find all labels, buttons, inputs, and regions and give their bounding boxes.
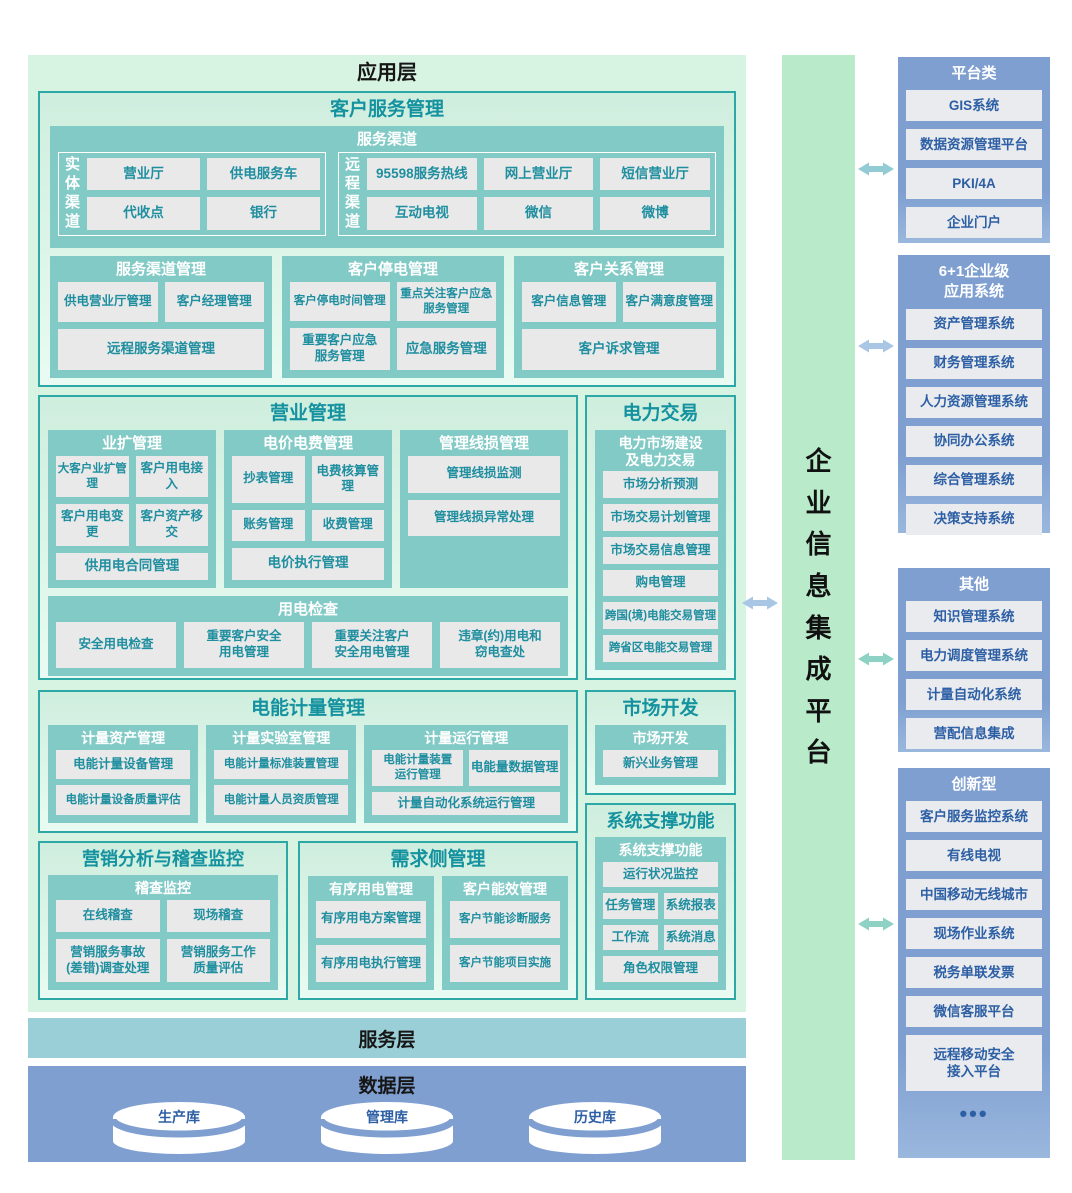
module-item: 电费核算管理	[312, 456, 385, 503]
data-layer-title: 数据层	[28, 1066, 746, 1098]
module-item: 客户诉求管理	[522, 329, 716, 370]
module-item: 重点关注客户应急 服务管理	[397, 282, 497, 321]
system-item: 协同办公系统	[906, 426, 1042, 457]
system-item: 企业门户	[906, 207, 1042, 238]
crm-group: 客户关系管理 客户信息管理 客户满意度管理 客户诉求管理	[514, 256, 724, 378]
physical-channels-frame: 实体渠道 营业厅 供电服务车 代收点 银行	[58, 152, 326, 236]
module-item: 抄表管理	[232, 456, 305, 503]
system-item: 数据资源管理平台	[906, 129, 1042, 160]
section-title: 客户服务管理	[40, 93, 734, 124]
inspection-group: 用电检查 安全用电检查 重要客户安全 用电管理 重要关注客户 安全用电管理 违章…	[48, 596, 568, 676]
system-item: 现场作业系统	[906, 918, 1042, 949]
section-title: 需求侧管理	[300, 843, 576, 874]
module-item: 系统报表	[664, 893, 719, 919]
section-title: 营销分析与稽查监控	[40, 843, 286, 873]
module-item: 客户节能诊断服务	[450, 901, 560, 938]
subgroup-header: 计量运行管理	[372, 725, 560, 750]
subgroup-header: 服务渠道管理	[58, 256, 264, 282]
subgroup-header: 稽查监控	[56, 875, 270, 900]
module-item: 有序用电方案管理	[316, 901, 426, 938]
right-group-title: 平台类	[906, 57, 1042, 90]
section-title: 电力交易	[587, 397, 734, 428]
module-item: 客户满意度管理	[623, 282, 717, 322]
application-layer-panel: 应用层 客户服务管理 服务渠道 实体渠道 营业厅 供电服务车 代收点 银行	[28, 55, 746, 1012]
module-item: 电能计量设备管理	[56, 750, 190, 780]
subgroup-header: 客户能效管理	[450, 876, 560, 901]
subgroup-header: 客户关系管理	[522, 256, 716, 282]
module-item: 供电服务车	[207, 158, 320, 191]
metering-operation-group: 计量运行管理 电能计量装置 运行管理 电能量数据管理 计量自动化系统运行管理	[364, 725, 568, 823]
database-cylinder: 管理库	[319, 1100, 455, 1158]
module-item: 工作流	[603, 925, 658, 951]
database-cylinder: 生产库	[111, 1100, 247, 1158]
channel-management-group: 服务渠道管理 供电营业厅管理 客户经理管理 远程服务渠道管理	[50, 256, 272, 378]
right-group-others: 其他 知识管理系统 电力调度管理系统 计量自动化系统 营配信息集成	[898, 568, 1050, 752]
database-label: 管理库	[319, 1107, 455, 1127]
subgroup-header: 服务渠道	[50, 126, 724, 152]
module-item: 重要关注客户 安全用电管理	[312, 622, 432, 668]
expansion-group: 业扩管理 大客户业扩管理 客户用电接入 客户用电变更 客户资产移交 供用电合同管…	[48, 430, 216, 588]
module-item: 客户节能项目实施	[450, 945, 560, 982]
section-metering: 电能计量管理 计量资产管理 电能计量设备管理 电能计量设备质量评估 计量实验室管…	[38, 690, 578, 833]
module-item: 电能计量装置 运行管理	[372, 750, 463, 786]
module-item: 系统消息	[664, 925, 719, 951]
module-item: 营销服务事故 (差错)调查处理	[56, 939, 160, 982]
module-item: 客户经理管理	[165, 282, 265, 322]
system-item: 电力调度管理系统	[906, 640, 1042, 671]
module-item: 营业厅	[87, 158, 200, 191]
bidirectional-arrow-icon	[742, 595, 778, 611]
outage-management-group: 客户停电管理 客户停电时间管理 重点关注客户应急 服务管理 重要客户应急 服务管…	[282, 256, 504, 378]
section-customer-service: 客户服务管理 服务渠道 实体渠道 营业厅 供电服务车 代收点 银行 远程	[38, 91, 736, 387]
system-item: 远程移动安全 接入平台	[906, 1035, 1042, 1091]
subgroup-header: 计量资产管理	[56, 725, 190, 750]
integration-platform-bar: 企业信息集成平台	[782, 55, 855, 1160]
module-item: 远程服务渠道管理	[58, 329, 264, 370]
module-item: 客户资产移交	[136, 504, 209, 545]
section-power-trading: 电力交易 电力市场建设 及电力交易 市场分析预测 市场交易计划管理 市场交易信息…	[585, 395, 736, 680]
module-item: 电能计量设备质量评估	[56, 785, 190, 815]
system-support-group: 系统支撑功能 运行状况监控 任务管理 系统报表 工作流 系统消息 角色权限管理	[595, 837, 726, 990]
module-item: 电能计量标准装置管理	[214, 750, 348, 780]
module-item: 计量自动化系统运行管理	[372, 792, 560, 815]
module-item: 市场交易计划管理	[603, 504, 718, 531]
module-item: 银行	[207, 197, 320, 230]
metering-lab-group: 计量实验室管理 电能计量标准装置管理 电能计量人员资质管理	[206, 725, 356, 823]
module-item: 运行状况监控	[603, 862, 718, 888]
module-item: 客户信息管理	[522, 282, 616, 322]
system-item: GIS系统	[906, 90, 1042, 121]
bidirectional-arrow-icon	[858, 651, 894, 667]
system-item: 营配信息集成	[906, 718, 1042, 749]
module-item: 网上营业厅	[484, 158, 594, 191]
module-item: 客户停电时间管理	[290, 282, 390, 321]
module-item: 供电营业厅管理	[58, 282, 158, 322]
module-item: 跨国(境)电能交易管理	[603, 602, 718, 629]
module-item: 收费管理	[312, 510, 385, 541]
module-item: 账务管理	[232, 510, 305, 541]
section-title: 系统支撑功能	[587, 805, 734, 835]
right-group-title: 6+1企业级 应用系统	[906, 255, 1042, 309]
section-title: 营业管理	[40, 397, 576, 428]
system-item: 决策支持系统	[906, 504, 1042, 535]
right-group-platform: 平台类 GIS系统 数据资源管理平台 PKI/4A 企业门户	[898, 57, 1050, 243]
module-item: 购电管理	[603, 570, 718, 597]
subgroup-header: 业扩管理	[56, 430, 208, 456]
section-demand-side: 需求侧管理 有序用电管理 有序用电方案管理 有序用电执行管理 客户能效管理	[298, 841, 578, 1000]
system-item: 财务管理系统	[906, 348, 1042, 379]
system-item: PKI/4A	[906, 168, 1042, 199]
system-item: 资产管理系统	[906, 309, 1042, 340]
subgroup-header: 电价电费管理	[232, 430, 384, 456]
system-item: 人力资源管理系统	[906, 387, 1042, 418]
module-item: 重要客户应急 服务管理	[290, 328, 390, 370]
bidirectional-arrow-icon	[858, 916, 894, 932]
module-item: 跨省区电能交易管理	[603, 635, 718, 662]
database-cylinder: 历史库	[527, 1100, 663, 1158]
service-layer-bar: 服务层	[28, 1018, 746, 1058]
more-items-ellipsis: •••	[906, 1099, 1042, 1129]
module-item: 市场分析预测	[603, 471, 718, 498]
module-item: 营销服务工作 质量评估	[167, 939, 271, 982]
section-marketing-audit: 营销分析与稽查监控 稽查监控 在线稽查 现场稽查 营销服务事故 (差错)调查处理…	[38, 841, 288, 1000]
power-market-group: 电力市场建设 及电力交易 市场分析预测 市场交易计划管理 市场交易信息管理 购电…	[595, 430, 726, 670]
module-item: 新兴业务管理	[603, 750, 718, 777]
module-item: 客户用电接入	[136, 456, 209, 497]
physical-channels-label: 实体渠道	[64, 156, 81, 231]
section-title: 市场开发	[587, 692, 734, 723]
database-label: 历史库	[527, 1107, 663, 1127]
system-item: 客户服务监控系统	[906, 801, 1042, 832]
audit-monitor-group: 稽查监控 在线稽查 现场稽查 营销服务事故 (差错)调查处理 营销服务工作 质量…	[48, 875, 278, 990]
module-item: 安全用电检查	[56, 622, 176, 668]
module-item: 电能量数据管理	[469, 750, 560, 786]
subgroup-header: 管理线损管理	[408, 430, 560, 456]
module-item: 供用电合同管理	[56, 553, 208, 580]
subgroup-header: 电力市场建设 及电力交易	[603, 430, 718, 472]
market-dev-group: 市场开发 新兴业务管理	[595, 725, 726, 785]
module-item: 在线稽查	[56, 900, 160, 933]
module-item: 大客户业扩管理	[56, 456, 129, 497]
spacer	[408, 543, 560, 580]
subgroup-header: 有序用电管理	[316, 876, 426, 901]
system-item: 综合管理系统	[906, 465, 1042, 496]
module-item: 微信	[484, 197, 594, 230]
module-item: 管理线损异常处理	[408, 500, 560, 537]
module-item: 市场交易信息管理	[603, 537, 718, 564]
right-group-title: 创新型	[906, 768, 1042, 801]
system-item: 计量自动化系统	[906, 679, 1042, 710]
subgroup-header: 计量实验室管理	[214, 725, 348, 750]
module-item: 角色权限管理	[603, 956, 718, 982]
application-layer-title: 应用层	[28, 55, 746, 89]
module-item: 现场稽查	[167, 900, 271, 933]
section-title: 电能计量管理	[40, 692, 576, 723]
section-market-development: 市场开发 市场开发 新兴业务管理	[585, 690, 736, 795]
section-business-management: 营业管理 业扩管理 大客户业扩管理 客户用电接入 客户用电变更 客户资产移交 供…	[38, 395, 578, 680]
system-item: 中国移动无线城市	[906, 879, 1042, 910]
module-item: 代收点	[87, 197, 200, 230]
module-item: 重要客户安全 用电管理	[184, 622, 304, 668]
module-item: 电能计量人员资质管理	[214, 785, 348, 815]
bidirectional-arrow-icon	[858, 161, 894, 177]
right-group-enterprise-apps: 6+1企业级 应用系统 资产管理系统 财务管理系统 人力资源管理系统 协同办公系…	[898, 255, 1050, 533]
system-item: 微信客服平台	[906, 996, 1042, 1027]
module-item: 客户用电变更	[56, 504, 129, 545]
subgroup-header: 市场开发	[603, 725, 718, 750]
remote-channels-frame: 远程渠道 95598服务热线 网上营业厅 短信营业厅 互动电视 微信 微博	[338, 152, 716, 236]
database-label: 生产库	[111, 1107, 247, 1127]
subgroup-header: 系统支撑功能	[603, 837, 718, 862]
system-item: 税务单联发票	[906, 957, 1042, 988]
service-layer-title: 服务层	[358, 1025, 415, 1052]
right-group-title: 其他	[906, 568, 1042, 601]
customer-efficiency-group: 客户能效管理 客户节能诊断服务 客户节能项目实施	[442, 876, 568, 990]
system-item: 知识管理系统	[906, 601, 1042, 632]
subgroup-header: 用电检查	[56, 596, 560, 622]
remote-channels-label: 远程渠道	[344, 156, 361, 231]
architecture-diagram: 应用层 客户服务管理 服务渠道 实体渠道 营业厅 供电服务车 代收点 银行	[0, 0, 1072, 1193]
bidirectional-arrow-icon	[858, 338, 894, 354]
module-item: 违章(约)用电和 窃电查处	[440, 622, 560, 668]
orderly-power-group: 有序用电管理 有序用电方案管理 有序用电执行管理	[308, 876, 434, 990]
line-loss-group: 管理线损管理 管理线损监测 管理线损异常处理	[400, 430, 568, 588]
module-item: 微博	[600, 197, 710, 230]
system-item: 有线电视	[906, 840, 1042, 871]
module-item: 互动电视	[367, 197, 477, 230]
service-channels-group: 服务渠道 实体渠道 营业厅 供电服务车 代收点 银行 远程渠道	[50, 126, 724, 248]
module-item: 有序用电执行管理	[316, 945, 426, 982]
module-item: 管理线损监测	[408, 456, 560, 493]
module-item: 应急服务管理	[397, 328, 497, 370]
module-item: 95598服务热线	[367, 158, 477, 191]
metering-asset-group: 计量资产管理 电能计量设备管理 电能计量设备质量评估	[48, 725, 198, 823]
integration-platform-title: 企业信息集成平台	[805, 441, 833, 774]
module-item: 短信营业厅	[600, 158, 710, 191]
right-group-innovative: 创新型 客户服务监控系统 有线电视 中国移动无线城市 现场作业系统 税务单联发票…	[898, 768, 1050, 1158]
subgroup-header: 客户停电管理	[290, 256, 496, 282]
pricing-group: 电价电费管理 抄表管理 电费核算管理 账务管理 收费管理 电价执行管理	[224, 430, 392, 588]
section-system-support: 系统支撑功能 系统支撑功能 运行状况监控 任务管理 系统报表 工作流 系统消息 …	[585, 803, 736, 1000]
data-layer-bar: 数据层 生产库 管理库	[28, 1066, 746, 1162]
module-item: 电价执行管理	[232, 548, 384, 580]
module-item: 任务管理	[603, 893, 658, 919]
